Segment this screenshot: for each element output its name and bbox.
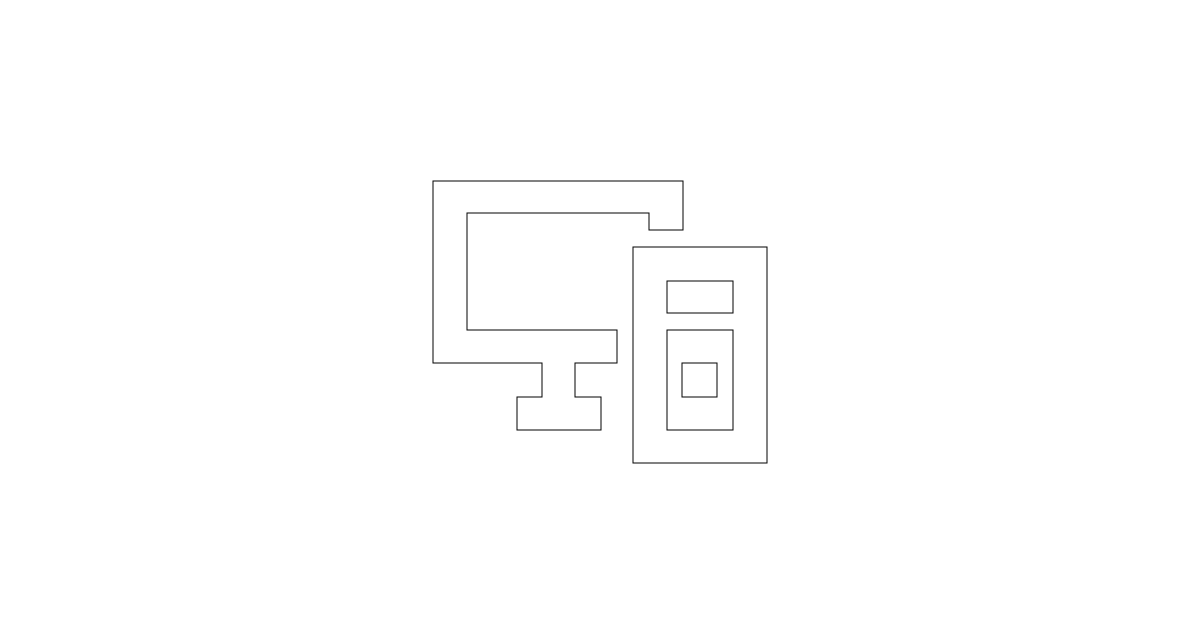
blank-canvas — [0, 0, 1200, 628]
tower-drive-bay — [667, 281, 733, 313]
tower-power-button — [682, 363, 717, 397]
desktop-computer-icon — [0, 0, 1200, 628]
